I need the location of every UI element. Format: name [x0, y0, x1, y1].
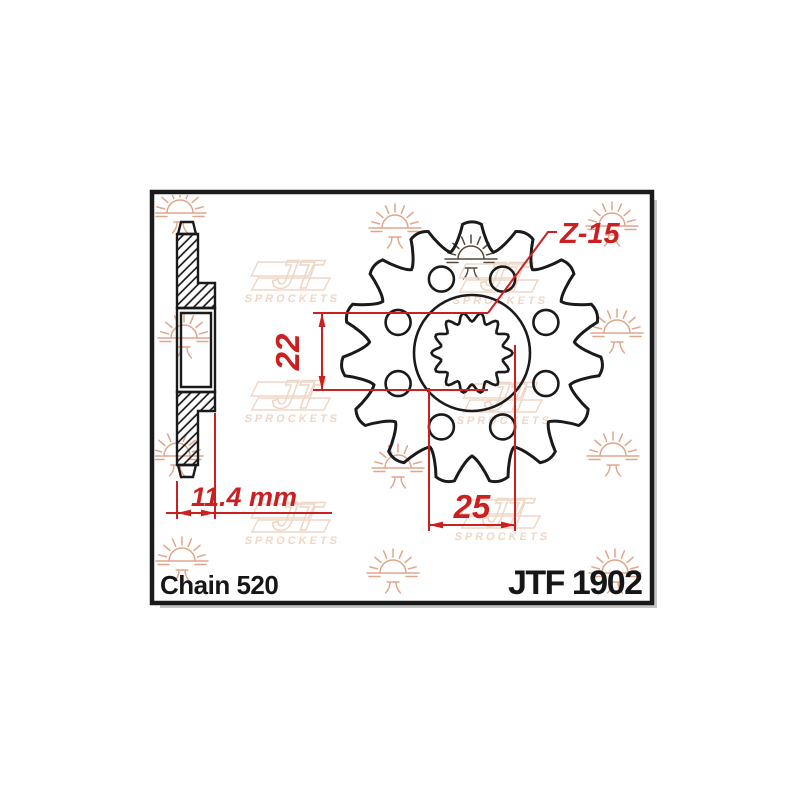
dim-bore-height-label: 22	[269, 333, 306, 371]
dim-bore-width-label: 25	[453, 488, 491, 525]
dim-thickness-label: 11.4 mm	[191, 482, 297, 512]
watermark-brand-sub: SPROCKETS	[454, 531, 552, 543]
technical-drawing: JTSPROCKETSJTSPROCKETSJTSPROCKETSJTSPROC…	[0, 0, 800, 800]
watermark-brand-sub: SPROCKETS	[244, 413, 342, 425]
teeth-count-label: Z-15	[559, 218, 621, 250]
part-number-label: JTF 1902	[508, 566, 642, 600]
watermark-brand-sub: SPROCKETS	[456, 415, 554, 427]
product-image: JTSPROCKETSJTSPROCKETSJTSPROCKETSJTSPROC…	[0, 0, 800, 800]
watermark-brand-sub: SPROCKETS	[244, 535, 342, 547]
chain-type-label: Chain 520	[160, 572, 278, 598]
watermark-brand-sub: SPROCKETS	[244, 293, 342, 305]
